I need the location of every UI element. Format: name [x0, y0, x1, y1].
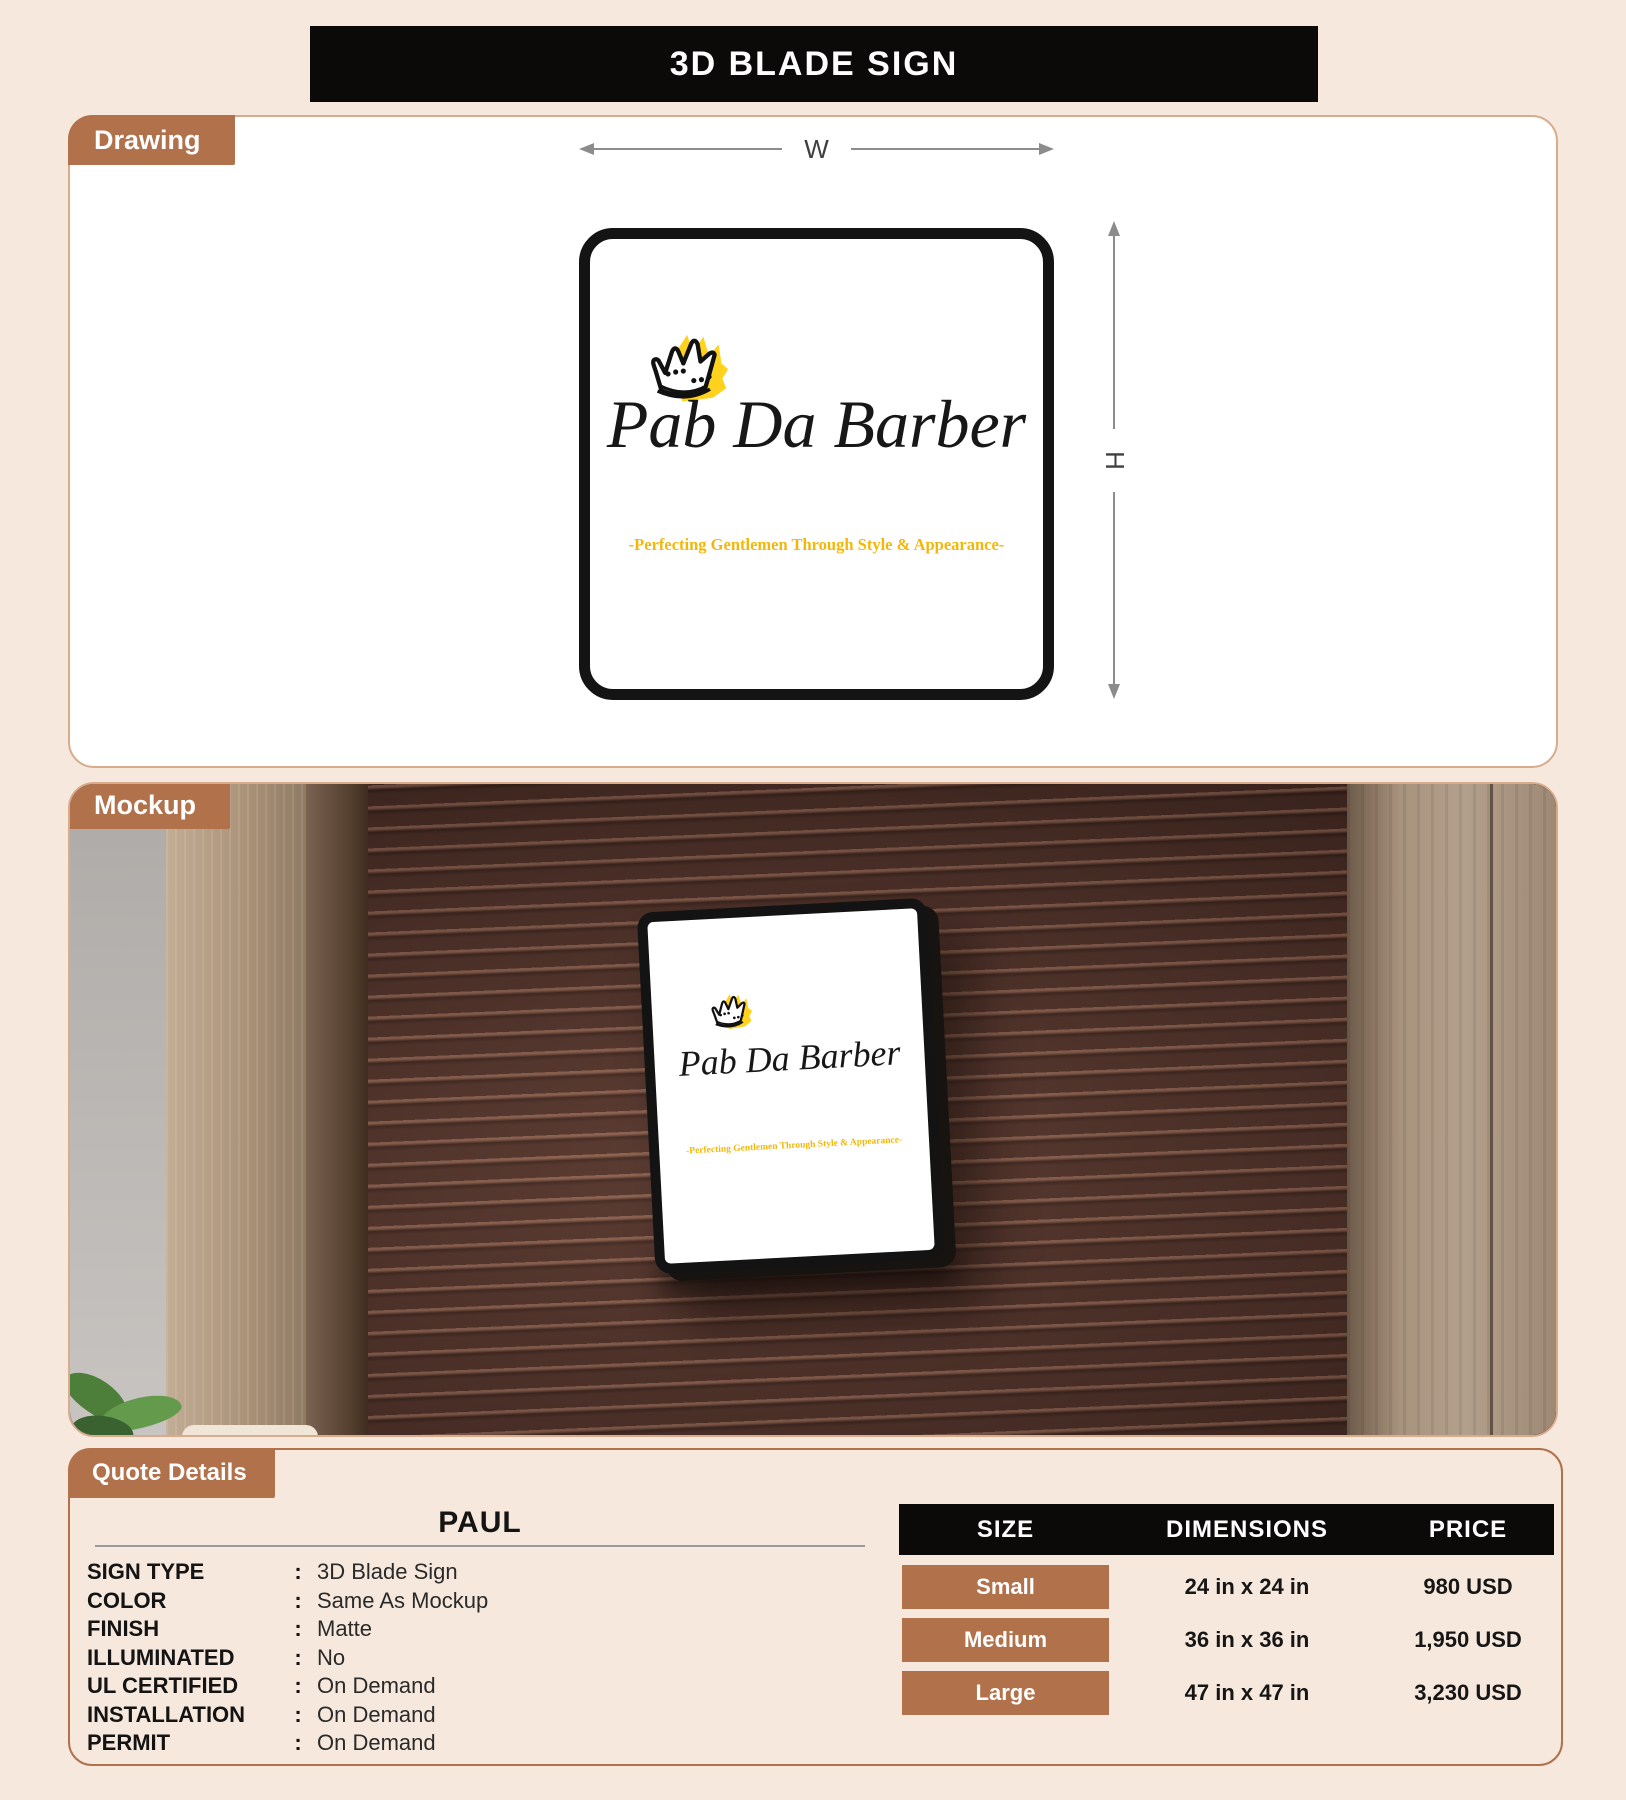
spec-value: No [307, 1644, 887, 1673]
title-bar: 3D BLADE SIGN [310, 26, 1318, 102]
spec-label: PERMIT [87, 1729, 289, 1758]
dimensions-cell: 36 in x 36 in [1112, 1627, 1382, 1653]
pricing-table-header-cell: SIZE [899, 1516, 1112, 1544]
spec-value: 3D Blade Sign [307, 1558, 887, 1587]
dimensions-cell: 24 in x 24 in [1112, 1574, 1382, 1600]
wood-pillar-right [1347, 784, 1558, 1435]
spec-value: On Demand [307, 1672, 887, 1701]
sign-mockup: Pab Da Barber -Perfecting Gentlemen Thro… [637, 898, 946, 1275]
pricing-table: SIZE DIMENSIONS PRICE Small 24 in x 24 i… [899, 1504, 1554, 1724]
brand-logo: Pab Da Barber -Perfecting Gentlemen Thro… [590, 239, 1043, 689]
brand-name: Pab Da Barber [654, 1030, 926, 1086]
height-label: H [1083, 451, 1146, 470]
spec-separator: : [289, 1587, 307, 1616]
sign-drawing: Pab Da Barber -Perfecting Gentlemen Thro… [579, 228, 1054, 700]
spec-label: FINISH [87, 1615, 289, 1644]
brand-name: Pab Da Barber [590, 385, 1043, 464]
spec-row: UL CERTIFIED : On Demand [87, 1672, 887, 1701]
size-option-button[interactable]: Small [902, 1565, 1109, 1609]
tab-drawing-label: Drawing [94, 125, 201, 156]
wood-pillar-left [166, 784, 308, 1435]
spec-value: Matte [307, 1615, 887, 1644]
spec-value: On Demand [307, 1729, 887, 1758]
tab-drawing: Drawing [68, 115, 235, 165]
quote-sheet: 3D BLADE SIGN Drawing W H Pab Da Barber … [0, 0, 1626, 1800]
spec-row: COLOR : Same As Mockup [87, 1587, 887, 1616]
spec-row: PERMIT : On Demand [87, 1729, 887, 1758]
pricing-table-row: Medium 36 in x 36 in 1,950 USD [899, 1618, 1554, 1662]
spec-list: SIGN TYPE : 3D Blade Sign COLOR : Same A… [87, 1558, 887, 1758]
width-dimension-arrow: W [579, 137, 1054, 161]
pricing-table-header-cell: PRICE [1382, 1516, 1554, 1544]
price-cell: 1,950 USD [1382, 1627, 1554, 1653]
size-option-button[interactable]: Medium [902, 1618, 1109, 1662]
pricing-table-row: Large 47 in x 47 in 3,230 USD [899, 1671, 1554, 1715]
spec-label: COLOR [87, 1587, 289, 1616]
spec-separator: : [289, 1672, 307, 1701]
price-cell: 980 USD [1382, 1574, 1554, 1600]
wood-pillar-edge [306, 784, 368, 1435]
spec-separator: : [289, 1701, 307, 1730]
mockup-panel: Pab Da Barber -Perfecting Gentlemen Thro… [68, 782, 1558, 1437]
grey-wall [70, 784, 168, 1435]
spec-row: FINISH : Matte [87, 1615, 887, 1644]
spec-label: ILLUMINATED [87, 1644, 289, 1673]
tab-mockup-label: Mockup [94, 790, 196, 821]
spec-label: UL CERTIFIED [87, 1672, 289, 1701]
crown-icon [706, 991, 758, 1037]
spec-label: INSTALLATION [87, 1701, 289, 1730]
tab-quote-details: Quote Details [68, 1448, 275, 1498]
width-label: W [782, 134, 851, 165]
spec-separator: : [289, 1644, 307, 1673]
tab-mockup: Mockup [68, 782, 230, 829]
arrow-up-icon [1108, 221, 1120, 236]
brand-tagline: -Perfecting Gentlemen Through Style & Ap… [659, 1134, 929, 1158]
arrow-left-icon [579, 143, 594, 155]
divider [95, 1545, 865, 1547]
tab-quote-details-label: Quote Details [92, 1459, 247, 1487]
pricing-table-row: Small 24 in x 24 in 980 USD [899, 1565, 1554, 1609]
counter-top [182, 1425, 318, 1437]
spec-separator: : [289, 1558, 307, 1587]
quote-details-box: Quote Details PAUL SIGN TYPE : 3D Blade … [68, 1448, 1563, 1766]
spec-row: ILLUMINATED : No [87, 1644, 887, 1673]
size-option-button[interactable]: Large [902, 1671, 1109, 1715]
wood-crack [1490, 784, 1493, 1435]
spec-separator: : [289, 1729, 307, 1758]
spec-row: INSTALLATION : On Demand [87, 1701, 887, 1730]
arrow-down-icon [1108, 684, 1120, 699]
pricing-table-header: SIZE DIMENSIONS PRICE [899, 1504, 1554, 1555]
drawing-panel: Drawing W H Pab Da Barber -Perfecting Ge… [68, 115, 1558, 768]
dimensions-cell: 47 in x 47 in [1112, 1680, 1382, 1706]
spec-row: SIGN TYPE : 3D Blade Sign [87, 1558, 887, 1587]
arrow-right-icon [1039, 143, 1054, 155]
spec-label: SIGN TYPE [87, 1558, 289, 1587]
spec-value: Same As Mockup [307, 1587, 887, 1616]
brand-tagline: -Perfecting Gentlemen Through Style & Ap… [590, 535, 1043, 555]
price-cell: 3,230 USD [1382, 1680, 1554, 1706]
brand-logo: Pab Da Barber -Perfecting Gentlemen Thro… [647, 908, 935, 1264]
spec-value: On Demand [307, 1701, 887, 1730]
height-dimension-arrow: H [1102, 221, 1126, 699]
pricing-table-header-cell: DIMENSIONS [1112, 1516, 1382, 1544]
page-title: 3D BLADE SIGN [670, 45, 959, 84]
customer-name: PAUL [95, 1506, 865, 1540]
pricing-table-rows: Small 24 in x 24 in 980 USD Medium 36 in… [899, 1565, 1554, 1715]
spec-separator: : [289, 1615, 307, 1644]
